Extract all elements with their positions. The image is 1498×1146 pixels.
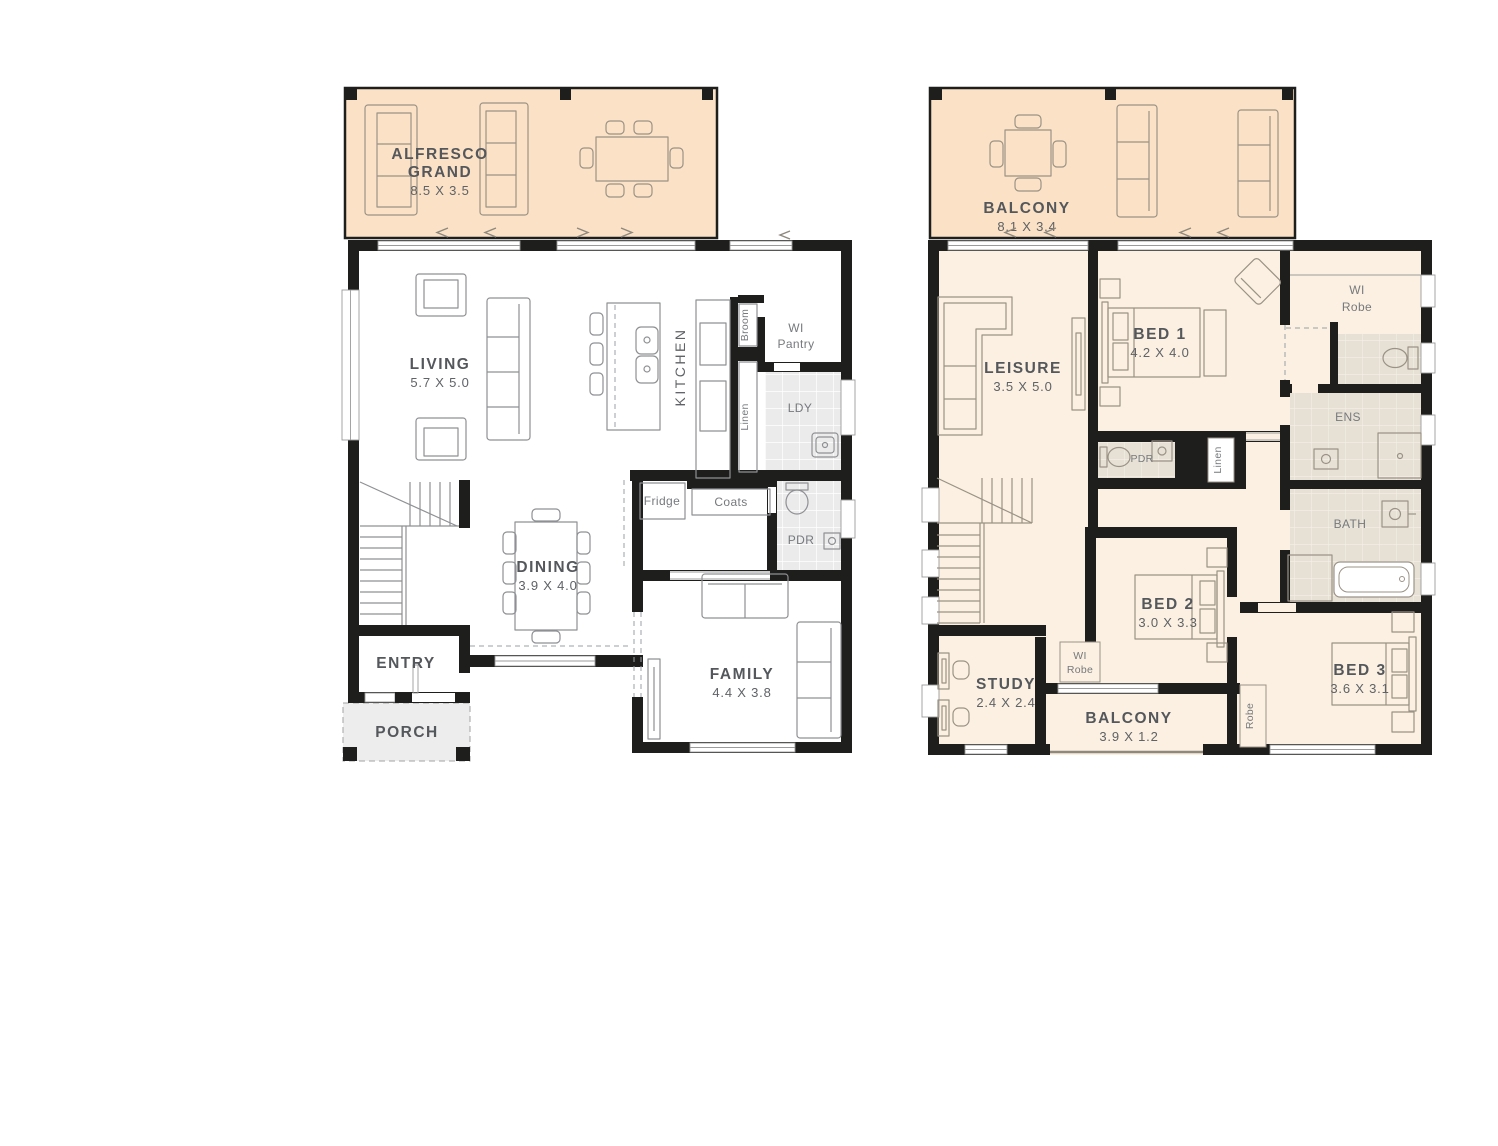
room-dims-family: 4.4 X 3.8: [712, 685, 771, 700]
room-label-study: STUDY: [976, 676, 1036, 693]
room-dims-living: 5.7 X 5.0: [410, 375, 469, 390]
label-wi-robe-2: Robe: [1342, 300, 1372, 314]
floor-plan-page: ALFRESCO GRAND 8.5 X 3.5: [0, 0, 1498, 1146]
label-wi-robe: WI: [1349, 283, 1364, 297]
label-linen-upper: Linen: [1212, 446, 1224, 473]
room-label-leisure: LEISURE: [984, 360, 1062, 377]
room-label-porch: PORCH: [375, 724, 438, 741]
ens-tiles: [1288, 392, 1421, 480]
room-label-balcony-rear: BALCONY: [1085, 710, 1172, 727]
upper-floor-plan: BALCONY 8.1 X 3.4: [920, 85, 1440, 777]
room-label-bed1: BED 1: [1133, 326, 1186, 343]
wi-robe-2-box: [1060, 642, 1100, 682]
room-label-entry: ENTRY: [376, 655, 435, 672]
room-label-family: FAMILY: [710, 666, 774, 683]
label-ens: ENS: [1335, 410, 1361, 424]
room-alfresco: ALFRESCO GRAND 8.5 X 3.5: [345, 88, 717, 238]
room-dims-leisure: 3.5 X 5.0: [993, 379, 1052, 394]
room-label-dining: DINING: [516, 559, 579, 576]
label-wi-pantry-2: Pantry: [777, 337, 814, 351]
room-dims-balcony-rear: 3.9 X 1.2: [1099, 729, 1158, 744]
room-dims-alfresco: 8.5 X 3.5: [410, 183, 469, 198]
room-label-living: LIVING: [410, 356, 471, 373]
label-wi-robe-2a: WI: [1073, 650, 1086, 662]
label-fridge: Fridge: [644, 494, 680, 508]
powder-tiles: [777, 481, 841, 570]
room-label-bed2: BED 2: [1141, 596, 1194, 613]
room-label-balcony: BALCONY: [983, 200, 1070, 217]
room-dims-dining: 3.9 X 4.0: [518, 578, 577, 593]
room-label-bed3: BED 3: [1333, 662, 1386, 679]
label-robe: Robe: [1244, 703, 1256, 729]
robe-bed3: Robe: [1240, 685, 1266, 747]
label-wi-robe-2b: Robe: [1067, 664, 1093, 676]
laundry-tiles: [765, 372, 841, 480]
label-broom: Broom: [739, 309, 751, 341]
label-coats: Coats: [714, 495, 747, 509]
label-powder-upper: PDR: [1130, 453, 1153, 465]
room-label-alfresco: ALFRESCO: [391, 146, 488, 163]
room-label-alfresco-2: GRAND: [408, 164, 472, 181]
front-door-opening: [412, 693, 455, 702]
label-laundry: LDY: [788, 401, 813, 415]
room-dims-bed3: 3.6 X 3.1: [1330, 681, 1389, 696]
label-powder: PDR: [788, 533, 815, 547]
label-linen: Linen: [739, 403, 751, 430]
bathtub-icon: [1334, 562, 1414, 597]
label-bath: BATH: [1334, 517, 1367, 531]
label-wi-pantry: WI: [788, 321, 803, 335]
room-dims-bed2: 3.0 X 3.3: [1138, 615, 1197, 630]
slider-arrow-icon: [780, 231, 790, 239]
room-dims-bed1: 4.2 X 4.0: [1130, 345, 1189, 360]
room-balcony: BALCONY 8.1 X 3.4: [930, 88, 1295, 238]
ground-floor-plan: ALFRESCO GRAND 8.5 X 3.5: [340, 85, 860, 777]
room-label-kitchen: KITCHEN: [672, 328, 688, 407]
room-dims-study: 2.4 X 2.4: [976, 695, 1035, 710]
